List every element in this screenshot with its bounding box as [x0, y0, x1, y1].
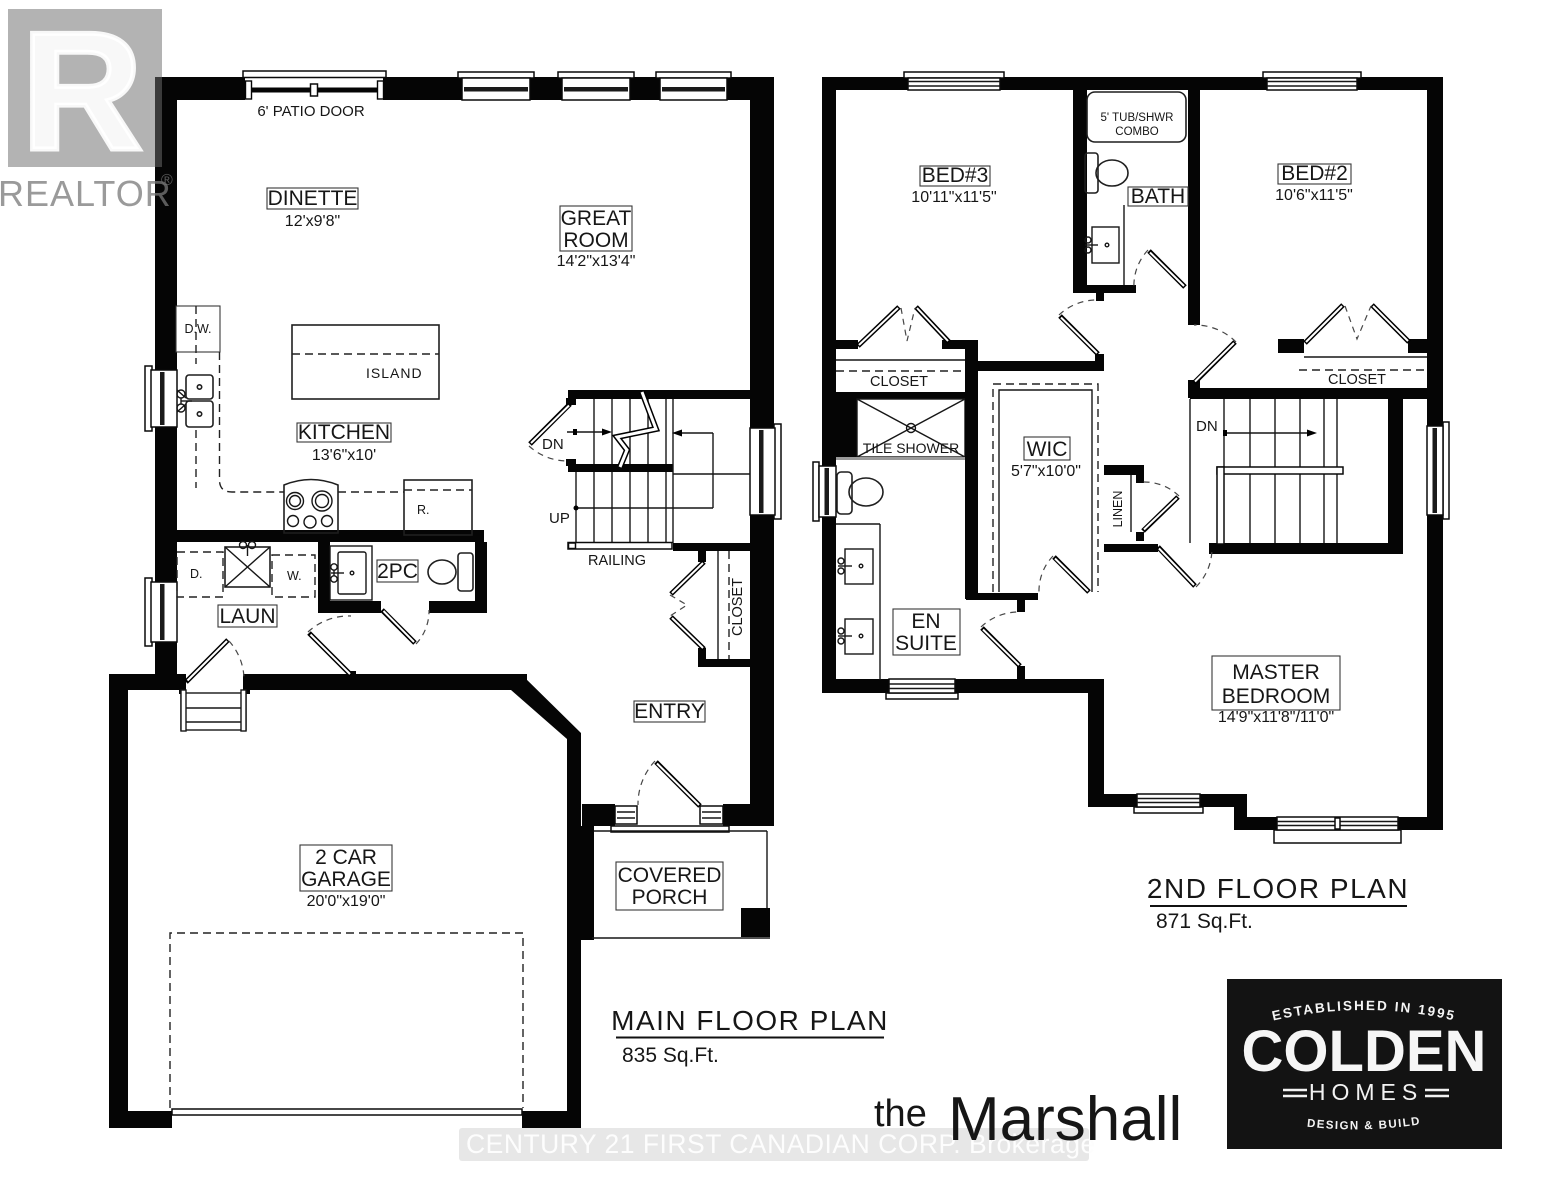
- svg-text:COMBO: COMBO: [1115, 126, 1159, 138]
- svg-text:871 Sq.Ft.: 871 Sq.Ft.: [1156, 910, 1253, 933]
- svg-text:LINEN: LINEN: [1111, 491, 1125, 528]
- svg-text:MAIN FLOOR PLAN: MAIN FLOOR PLAN: [611, 1005, 889, 1036]
- svg-text:2ND FLOOR PLAN: 2ND FLOOR PLAN: [1147, 873, 1409, 904]
- svg-text:BATH: BATH: [1131, 185, 1185, 208]
- svg-text:10'6"x11'5": 10'6"x11'5": [1275, 187, 1353, 204]
- svg-text:TILE SHOWER: TILE SHOWER: [863, 440, 959, 456]
- svg-text:20'0"x19'0": 20'0"x19'0": [307, 893, 386, 910]
- svg-text:ENTRY: ENTRY: [634, 700, 705, 723]
- svg-text:ROOM: ROOM: [563, 229, 628, 252]
- svg-text:ISLAND: ISLAND: [366, 365, 423, 381]
- svg-text:GARAGE: GARAGE: [301, 868, 391, 891]
- svg-text:REALTOR: REALTOR: [0, 173, 172, 214]
- svg-text:DINETTE: DINETTE: [268, 187, 358, 210]
- svg-text:RAILING: RAILING: [588, 553, 646, 569]
- svg-text:UP: UP: [549, 510, 570, 527]
- svg-text:835 Sq.Ft.: 835 Sq.Ft.: [622, 1044, 719, 1067]
- svg-text:14'2"x13'4": 14'2"x13'4": [557, 253, 636, 270]
- svg-text:DN: DN: [1196, 418, 1218, 435]
- svg-text:2PC: 2PC: [377, 560, 418, 583]
- svg-text:CLOSET: CLOSET: [870, 374, 928, 390]
- svg-text:CLOSET: CLOSET: [730, 578, 746, 636]
- svg-text:14'9"x11'8"/11'0": 14'9"x11'8"/11'0": [1218, 709, 1334, 726]
- svg-text:CLOSET: CLOSET: [1328, 372, 1386, 388]
- svg-text:GREAT: GREAT: [561, 207, 632, 230]
- svg-text:12'x9'8": 12'x9'8": [285, 213, 340, 230]
- svg-text:D.: D.: [190, 567, 203, 581]
- svg-text:D.W.: D.W.: [184, 322, 211, 336]
- svg-text:DN: DN: [542, 436, 564, 453]
- svg-text:5'7"x10'0": 5'7"x10'0": [1011, 463, 1081, 480]
- svg-text:Marshall: Marshall: [948, 1085, 1182, 1154]
- svg-text:HOMES: HOMES: [1309, 1079, 1423, 1105]
- svg-text:EN: EN: [911, 610, 940, 633]
- svg-text:13'6"x10': 13'6"x10': [312, 447, 376, 464]
- svg-text:KITCHEN: KITCHEN: [298, 421, 390, 444]
- svg-text:BED#3: BED#3: [922, 164, 989, 187]
- svg-text:COVERED: COVERED: [618, 864, 722, 887]
- svg-text:R.: R.: [417, 503, 430, 517]
- svg-text:SUITE: SUITE: [895, 632, 957, 655]
- svg-text:10'11"x11'5": 10'11"x11'5": [911, 189, 996, 206]
- svg-text:LAUN: LAUN: [219, 605, 275, 628]
- svg-text:PORCH: PORCH: [632, 886, 708, 909]
- svg-text:WIC: WIC: [1027, 438, 1068, 461]
- svg-text:the: the: [874, 1093, 927, 1135]
- svg-text:MASTER: MASTER: [1232, 661, 1320, 684]
- svg-text:COLDEN: COLDEN: [1242, 1019, 1487, 1084]
- svg-text:6' PATIO DOOR: 6' PATIO DOOR: [257, 103, 364, 120]
- svg-text:BEDROOM: BEDROOM: [1222, 685, 1331, 708]
- svg-text:W.: W.: [287, 569, 302, 583]
- svg-text:®: ®: [161, 172, 173, 189]
- svg-text:5' TUB/SHWR: 5' TUB/SHWR: [1101, 112, 1174, 124]
- svg-text:BED#2: BED#2: [1281, 162, 1348, 185]
- svg-text:R: R: [21, 0, 142, 185]
- svg-text:2 CAR: 2 CAR: [315, 846, 377, 869]
